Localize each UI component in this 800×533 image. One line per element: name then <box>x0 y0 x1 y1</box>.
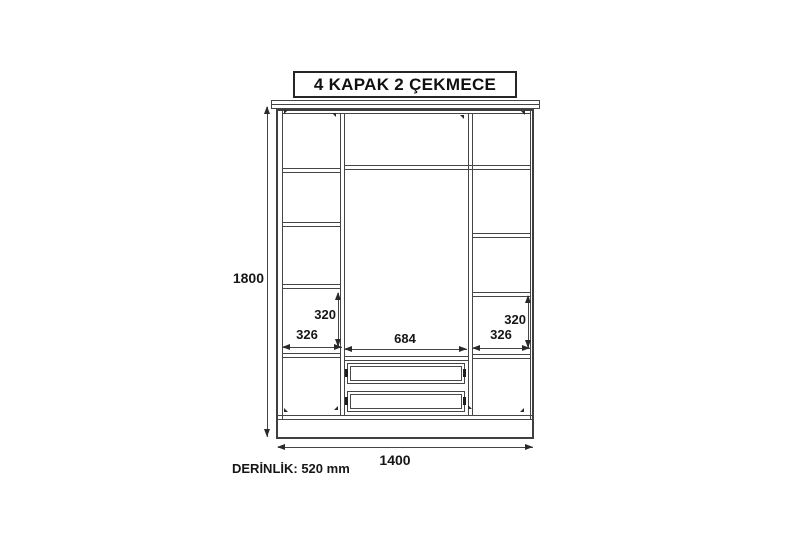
dim-width-arrow-left <box>277 444 285 450</box>
dim-height-arrow-bottom <box>264 429 270 437</box>
dim-right-height-arrow-top <box>525 295 531 303</box>
drawer-2-front-line <box>350 394 462 409</box>
right-side-panel-inner-line <box>530 111 531 419</box>
dim-right-height-label: 320 <box>494 313 526 327</box>
left-shelf-4 <box>283 353 340 358</box>
dim-left-width-label: 326 <box>287 328 327 342</box>
dim-center-width-arrow-right <box>459 346 467 352</box>
drawing-title: 4 KAPAK 2 ÇEKMECE <box>314 75 496 95</box>
drawer-top-shelf <box>344 356 468 361</box>
top-panel-inner-line <box>283 113 530 114</box>
dim-right-width-label: 326 <box>480 328 522 342</box>
dim-height-label: 1800 <box>226 271 264 286</box>
right-shelf-2 <box>472 233 530 238</box>
corner-mark-bottom-right-divider <box>468 405 472 409</box>
dim-width-arrow-right <box>525 444 533 450</box>
drawer-2 <box>347 391 465 412</box>
drawer-2-left-slide-mark <box>345 397 348 405</box>
cornice-profile-line <box>272 104 539 105</box>
dim-center-width-arrow-left <box>344 346 352 352</box>
left-shelf-3 <box>283 284 340 289</box>
dim-right-width-arrow-right <box>522 345 530 351</box>
left-side-panel-inner-line <box>282 111 283 419</box>
corner-mark-bottom-left <box>284 408 288 412</box>
right-shelf-4 <box>472 354 530 359</box>
corner-mark-top-right <box>521 111 525 115</box>
left-divider-line-a <box>340 113 341 415</box>
dim-left-height-arrow-top <box>335 292 341 300</box>
dim-right-width-arrow-left <box>472 345 480 351</box>
dim-center-width-label: 684 <box>384 332 426 346</box>
furniture-technical-drawing: 4 KAPAK 2 ÇEKMECE 1800 <box>0 0 800 533</box>
bottom-deck-line-lower <box>278 419 532 420</box>
drawer-1-front-line <box>350 366 462 381</box>
drawer-2-right-slide-mark <box>463 397 466 405</box>
dim-left-height-label: 320 <box>302 308 336 322</box>
corner-mark-top-left-divider <box>332 113 336 117</box>
corner-mark-top-right-divider <box>460 115 464 119</box>
carcass-outline <box>276 109 534 439</box>
right-shelf-3 <box>472 292 530 297</box>
dim-left-width-arrow-right <box>334 344 342 350</box>
drawer-1-left-slide-mark <box>345 369 348 377</box>
dim-left-width-arrow-left <box>282 344 290 350</box>
right-divider-line-a <box>468 113 469 415</box>
bottom-deck-line-upper <box>278 415 532 416</box>
center-top-shelf <box>344 165 530 170</box>
drawing-title-box: 4 KAPAK 2 ÇEKMECE <box>293 71 517 98</box>
drawer-1 <box>347 363 465 384</box>
depth-note: DERİNLİK: 520 mm <box>232 462 412 476</box>
dim-width-line <box>278 447 533 448</box>
corner-mark-top-left <box>284 110 288 114</box>
dim-height-arrow-top <box>264 106 270 114</box>
left-shelf-2 <box>283 222 340 227</box>
left-shelf-1 <box>283 168 340 173</box>
corner-mark-bottom-left-divider <box>334 406 338 410</box>
right-divider-line-b <box>472 113 473 415</box>
corner-mark-bottom-right <box>520 408 524 412</box>
dim-center-width-line <box>345 349 467 350</box>
drawer-1-right-slide-mark <box>463 369 466 377</box>
dim-height-line <box>267 107 268 437</box>
